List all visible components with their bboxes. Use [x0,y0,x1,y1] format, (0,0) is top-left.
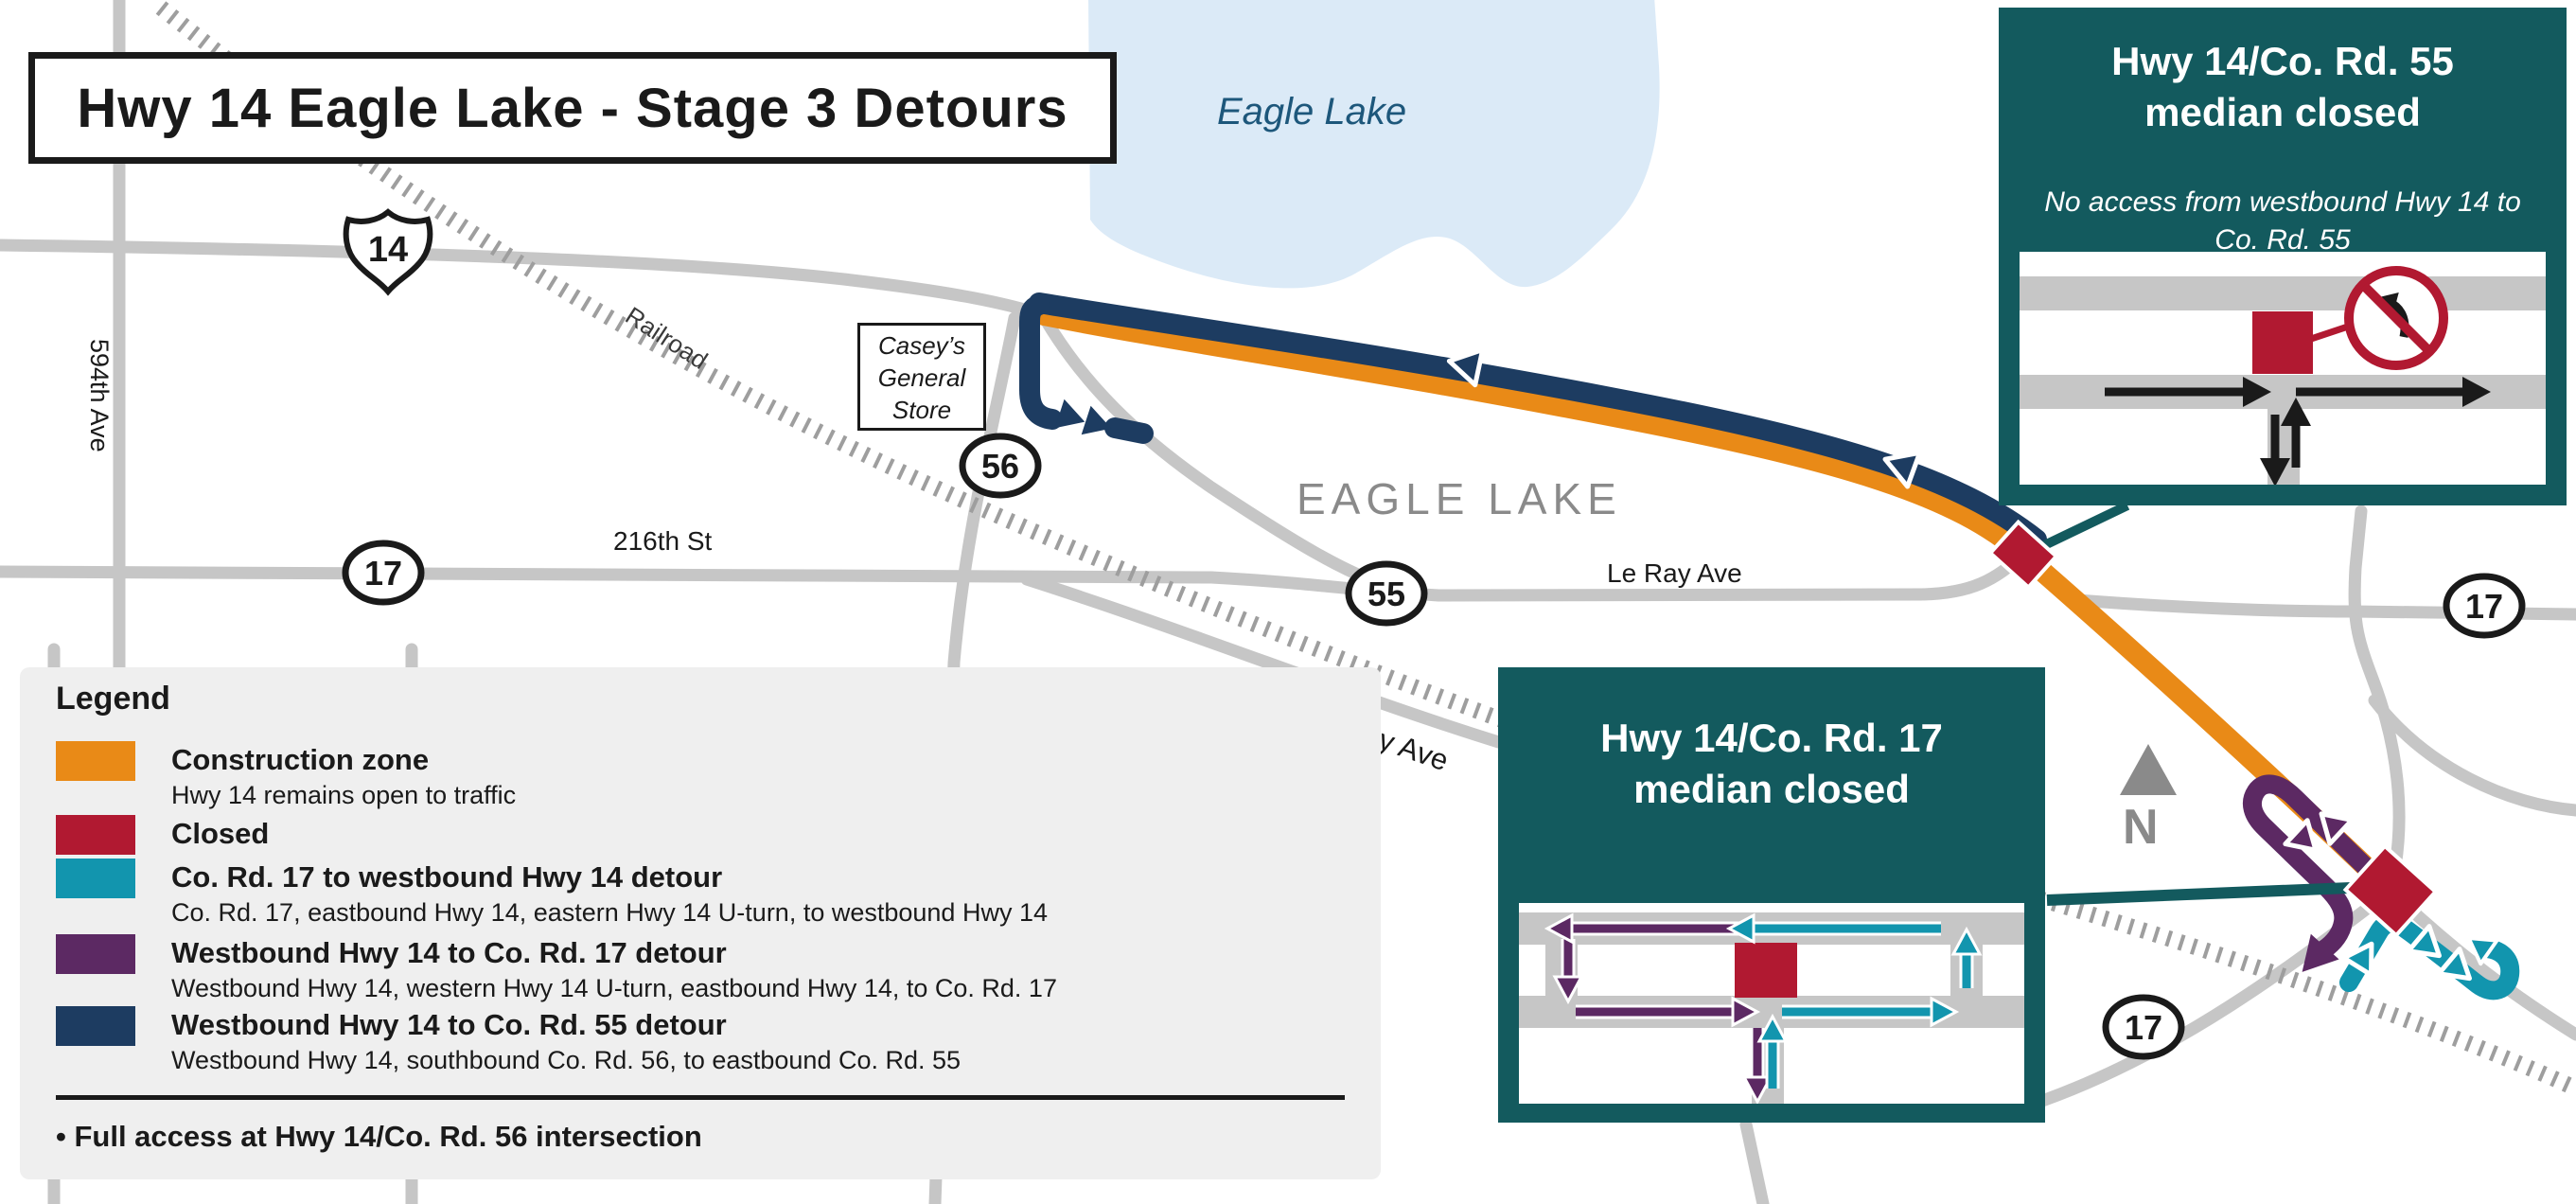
callout-co17-diagram [1519,903,2024,1104]
city-name-label: EAGLE LAKE [1297,473,1622,524]
legend-swatch-teal-detour [56,859,135,898]
callout-co17-title-line2: median closed [1498,764,2045,815]
street-label-594th-ave: 594th Ave [84,339,114,452]
caseys-line2: General [860,362,983,394]
map-title-box: Hwy 14 Eagle Lake - Stage 3 Detours [28,52,1117,164]
legend-sub-purple-detour: Westbound Hwy 14, western Hwy 14 U-turn,… [171,974,1057,1003]
legend-heading: Legend [56,681,170,717]
legend-swatch-closed [56,815,135,855]
callout-co55-title-line1: Hwy 14/Co. Rd. 55 [1999,36,2567,87]
callout-co17: Hwy 14/Co. Rd. 17 median closed [1498,667,2045,1123]
road-ne-branch [2374,700,2576,810]
caseys-general-store-label: Casey’s General Store [857,323,986,431]
north-label: N [2123,799,2159,856]
legend: Legend Construction zone Hwy 14 remains … [20,667,1381,1179]
lake-name-label: Eagle Lake [1217,91,1406,133]
north-arrow-icon [2120,744,2177,795]
us14-shield-number: 14 [343,231,433,269]
detour-purple [2252,784,2377,949]
legend-swatch-construction [56,741,135,781]
legend-label-purple-detour: Westbound Hwy 14 to Co. Rd. 17 detour [171,936,727,970]
legend-sub-construction: Hwy 14 remains open to traffic [171,781,516,810]
page-title: Hwy 14 Eagle Lake - Stage 3 Detours [77,77,1067,140]
no-left-turn-icon [2349,271,2444,365]
callout-co55-body: No access from westbound Hwy 14 to Co. R… [2037,184,2529,259]
street-label-le-ray-ave: Le Ray Ave [1607,558,1742,589]
legend-sub-teal-detour: Co. Rd. 17, eastbound Hwy 14, eastern Hw… [171,898,1048,928]
co56-shield-number: 56 [962,448,1038,486]
callout-co55-title-line2: median closed [1999,87,2567,138]
callout-co55-title: Hwy 14/Co. Rd. 55 median closed [1999,36,2567,138]
callout-co17-title: Hwy 14/Co. Rd. 17 median closed [1498,713,2045,815]
legend-label-closed: Closed [171,817,269,851]
page: { "title": "Hwy 14 Eagle Lake - Stage 3 … [0,0,2576,1204]
co55-diagram-road-west [2020,276,2546,310]
legend-swatch-navy-detour [56,1006,135,1046]
co17-diagram-closed-median [1735,943,1797,998]
callout-co55: Hwy 14/Co. Rd. 55 median closed No acces… [1999,8,2567,505]
road-stub-south [1746,1124,1763,1204]
co17-diagram-canvas [1519,903,2024,1104]
callout-co17-title-line1: Hwy 14/Co. Rd. 17 [1498,713,2045,764]
eagle-lake-water [1088,0,1660,288]
co55-diagram-closed-median [2252,311,2313,374]
co17-shield-number-west: 17 [345,555,421,593]
caseys-line1: Casey’s [860,329,983,362]
legend-divider [56,1095,1345,1100]
legend-sub-navy-detour: Westbound Hwy 14, southbound Co. Rd. 56,… [171,1046,961,1075]
co17-shield-number-south: 17 [2106,1009,2181,1047]
co55-shield-number: 55 [1349,575,1424,613]
legend-label-teal-detour: Co. Rd. 17 to westbound Hwy 14 detour [171,860,722,894]
co17-shield-number-east: 17 [2446,588,2522,626]
co55-diagram-canvas [2020,252,2546,485]
legend-label-navy-detour: Westbound Hwy 14 to Co. Rd. 55 detour [171,1008,727,1042]
legend-swatch-purple-detour [56,934,135,974]
street-label-216th-st: 216th St [613,526,712,557]
callout-co55-diagram [2020,252,2546,485]
legend-label-construction: Construction zone [171,743,429,777]
legend-note: • Full access at Hwy 14/Co. Rd. 56 inter… [56,1120,702,1154]
caseys-line3: Store [860,394,983,426]
